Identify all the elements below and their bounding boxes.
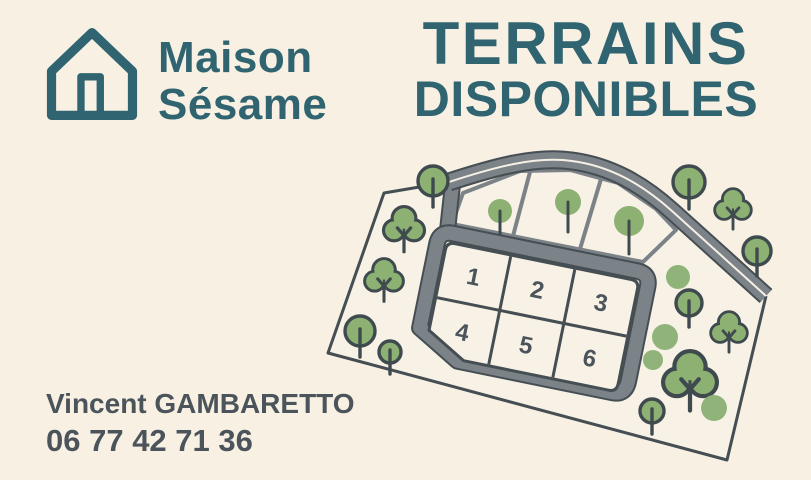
shrub-dot-icon <box>652 324 678 350</box>
headline-line1: TERRAINS <box>388 12 784 76</box>
round-tree-icon <box>673 166 705 209</box>
shrub-dot-icon <box>701 395 727 421</box>
brand-name-line1: Maison <box>158 34 327 81</box>
shrub-dot-icon <box>643 350 663 370</box>
headline-line2: DISPONIBLES <box>388 73 784 125</box>
contact-phone: 06 77 42 71 36 <box>46 423 355 459</box>
brand-name-line2: Sésame <box>158 81 327 128</box>
shrub-dot-icon <box>666 265 690 289</box>
cloud-tree-icon <box>715 189 752 229</box>
brand-name: Maison Sésame <box>158 34 327 128</box>
poster: 1 2 3 4 5 6 <box>0 0 811 480</box>
contact-block: Vincent GAMBARETTO 06 77 42 71 36 <box>46 388 355 459</box>
contact-name: Vincent GAMBARETTO <box>46 388 355 420</box>
headline: TERRAINS DISPONIBLES <box>388 12 784 125</box>
house-icon <box>46 28 138 120</box>
